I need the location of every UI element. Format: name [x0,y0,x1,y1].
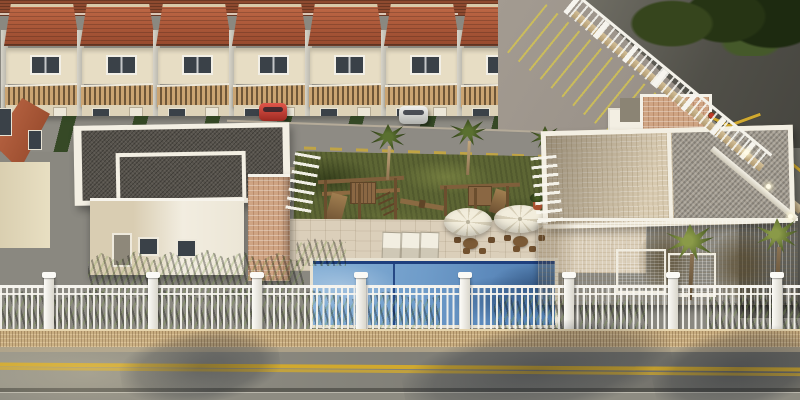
upper-window [182,55,213,75]
upper-wall [234,48,306,84]
window [176,239,197,258]
palm-tree [450,119,486,177]
carport-awning [385,83,459,107]
window [138,237,159,256]
carport-awning [309,83,383,107]
fence-lamp [766,184,771,189]
carport-awning [157,83,231,107]
neighbor-house [0,94,56,250]
fence-post [356,277,366,337]
townhouse-unit [308,2,384,132]
carport-awning [81,83,155,107]
upper-wall [386,48,458,84]
upper-wall [310,48,382,84]
patio-umbrella [444,208,492,236]
fence-post [668,277,678,337]
upper-window [106,55,137,75]
flat-roof-parapet [541,125,795,230]
white-car [399,106,428,124]
upper-window [30,55,61,75]
tile-roof [80,4,156,46]
play-tower [350,182,376,204]
sun-lounger [382,232,402,261]
fence-post [460,277,470,337]
aerial-render-scene [0,0,800,400]
tree-canopy [628,0,800,56]
tile-roof [232,4,308,46]
upper-wall [6,48,78,84]
palm-tree [370,124,406,182]
tile-roof [384,4,460,46]
inner-parapet [116,151,247,203]
tile-roof [4,4,80,46]
sun-lounger [401,232,421,261]
wood-posts [324,180,327,224]
upper-window [410,55,441,75]
wood-posts [444,186,447,216]
side-wall [0,162,50,248]
tile-roof [156,4,232,46]
window [28,130,42,150]
sunlight-wash [0,326,230,400]
fence-lamp [788,214,793,219]
upper-window [334,55,365,75]
townhouse-unit [80,2,156,132]
play-tower [468,186,492,206]
fence-lamp [744,150,749,155]
sun-lounger [420,232,440,261]
upper-wall [158,48,230,84]
window [0,108,12,136]
upper-wall [82,48,154,84]
upper-window [258,55,289,75]
townhouse-unit [156,2,232,132]
tile-roof [308,4,384,46]
